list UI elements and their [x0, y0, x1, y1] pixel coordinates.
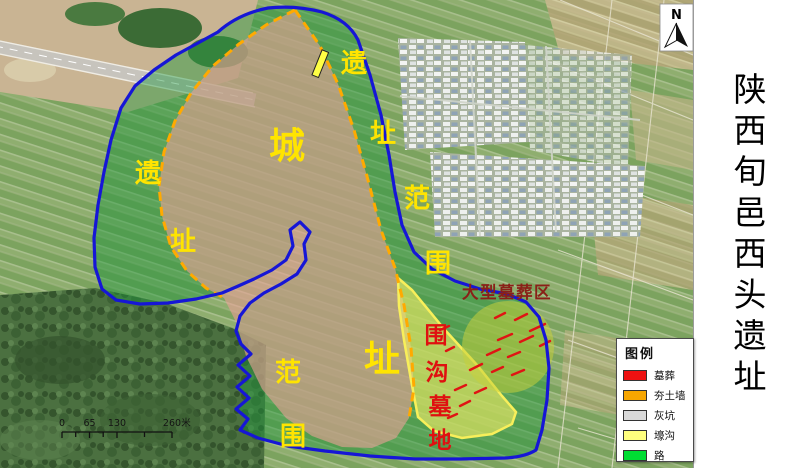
scale-tick-65: 65	[83, 418, 95, 429]
label-city-zhi: 址	[364, 339, 400, 380]
legend-swatch-rammed-wall	[623, 390, 647, 401]
scale-tick-260: 260	[163, 418, 181, 429]
title-panel: 陕西旬邑西头遗址	[694, 0, 800, 468]
legend-item-moat: 壕沟	[623, 425, 693, 445]
figure: 城 址 遗 址 遗 址 范 围 范 围 围 沟 墓 地 大型墓葬区 0 65	[0, 0, 800, 468]
label-large-tomb-area: 大型墓葬区	[462, 282, 552, 302]
legend-label-tombs: 墓葬	[654, 368, 675, 383]
label-city-cheng: 城	[269, 126, 305, 167]
scale-tick-130: 130	[108, 418, 126, 429]
figure-title: 陕西旬邑西头遗址	[723, 72, 771, 400]
north-label: N	[671, 8, 682, 23]
label-cemetery-gou: 沟	[426, 359, 449, 386]
map-canvas: 城 址 遗 址 遗 址 范 围 范 围 围 沟 墓 地 大型墓葬区 0 65	[0, 0, 693, 468]
north-arrow: N	[660, 4, 693, 51]
legend-item-ash-pit: 灰坑	[623, 405, 693, 425]
label-east-fan: 范	[404, 184, 430, 214]
legend-swatch-tombs	[623, 370, 647, 381]
legend-swatch-road	[623, 450, 647, 461]
map-area: 城 址 遗 址 遗 址 范 围 范 围 围 沟 墓 地 大型墓葬区 0 65	[0, 0, 694, 468]
legend-item-road: 路	[623, 445, 693, 465]
label-south-wei: 围	[280, 422, 306, 452]
label-east-wei: 围	[425, 249, 451, 279]
scale-unit: 米	[181, 417, 191, 429]
legend-label-moat: 壕沟	[654, 428, 675, 443]
legend-label-ash-pit: 灰坑	[654, 408, 675, 423]
legend-item-tombs: 墓葬	[623, 365, 693, 385]
label-west-yi: 遗	[135, 159, 161, 189]
label-east-yi: 遗	[341, 49, 367, 79]
legend-swatch-moat	[623, 430, 647, 441]
legend-swatch-ash-pit	[623, 410, 647, 421]
label-west-zhi: 址	[170, 227, 196, 257]
label-south-fan: 范	[275, 358, 301, 388]
legend-item-rammed-wall: 夯土墙	[623, 385, 693, 405]
scale-tick-0: 0	[59, 418, 65, 429]
legend-label-road: 路	[654, 448, 665, 463]
legend-title: 图例	[625, 343, 693, 362]
village-blocks	[398, 38, 645, 237]
legend: 图例 墓葬 夯土墙 灰坑 壕沟 路	[616, 338, 694, 462]
label-east-zhi: 址	[370, 119, 396, 149]
label-cemetery-mu: 墓	[428, 394, 453, 420]
label-cemetery-wei: 围	[425, 323, 448, 349]
legend-label-rammed-wall: 夯土墙	[654, 388, 686, 403]
label-cemetery-di: 地	[429, 428, 452, 454]
